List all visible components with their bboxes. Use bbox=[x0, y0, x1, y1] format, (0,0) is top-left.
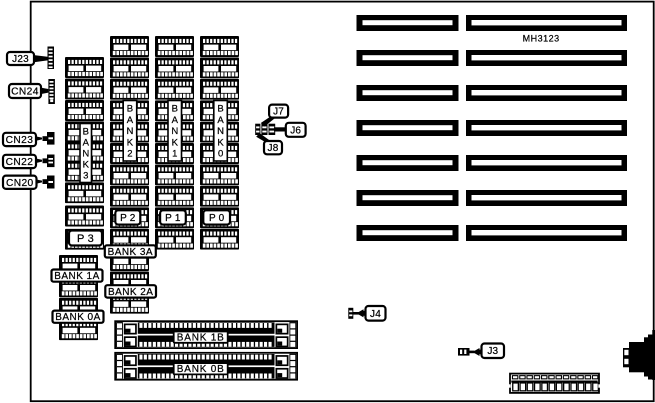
svg-text:P 0: P 0 bbox=[209, 213, 225, 224]
svg-text:J3: J3 bbox=[487, 346, 498, 357]
svg-text:B: B bbox=[83, 126, 89, 137]
svg-text:N: N bbox=[217, 126, 224, 137]
svg-text:CN24: CN24 bbox=[11, 87, 39, 98]
svg-text:0: 0 bbox=[218, 149, 223, 160]
svg-text:B: B bbox=[172, 104, 178, 115]
svg-text:B: B bbox=[217, 104, 223, 115]
svg-text:J23: J23 bbox=[12, 54, 29, 65]
svg-text:CN23: CN23 bbox=[6, 135, 34, 146]
svg-text:A: A bbox=[127, 115, 134, 126]
svg-text:N: N bbox=[171, 126, 178, 137]
svg-text:A: A bbox=[172, 115, 179, 126]
svg-text:1: 1 bbox=[172, 149, 177, 160]
svg-text:J6: J6 bbox=[290, 125, 301, 136]
svg-text:K: K bbox=[127, 137, 134, 148]
svg-text:N: N bbox=[82, 148, 89, 159]
svg-text:P 3: P 3 bbox=[77, 233, 94, 245]
svg-text:BANK 0A: BANK 0A bbox=[55, 312, 100, 323]
svg-text:P 1: P 1 bbox=[165, 213, 181, 224]
svg-text:BANK 1A: BANK 1A bbox=[54, 271, 99, 282]
svg-text:B: B bbox=[127, 104, 133, 115]
svg-text:K: K bbox=[83, 159, 90, 170]
svg-text:A: A bbox=[217, 115, 224, 126]
svg-text:J4: J4 bbox=[370, 309, 381, 320]
svg-text:CN20: CN20 bbox=[6, 178, 34, 189]
svg-text:K: K bbox=[217, 137, 224, 148]
svg-text:3: 3 bbox=[83, 170, 88, 181]
svg-text:P 2: P 2 bbox=[120, 213, 136, 224]
svg-text:K: K bbox=[172, 137, 179, 148]
svg-text:2: 2 bbox=[127, 149, 132, 160]
svg-text:MH3123: MH3123 bbox=[523, 33, 560, 43]
svg-text:CN22: CN22 bbox=[6, 157, 34, 168]
svg-text:N: N bbox=[126, 126, 133, 137]
svg-text:A: A bbox=[83, 137, 90, 148]
svg-text:BANK 1B: BANK 1B bbox=[177, 333, 225, 344]
svg-text:J7: J7 bbox=[273, 107, 284, 118]
svg-text:J8: J8 bbox=[268, 143, 279, 154]
svg-text:BANK 0B: BANK 0B bbox=[177, 364, 225, 375]
svg-text:BANK 3A: BANK 3A bbox=[108, 247, 153, 258]
svg-text:BANK 2A: BANK 2A bbox=[108, 287, 153, 298]
